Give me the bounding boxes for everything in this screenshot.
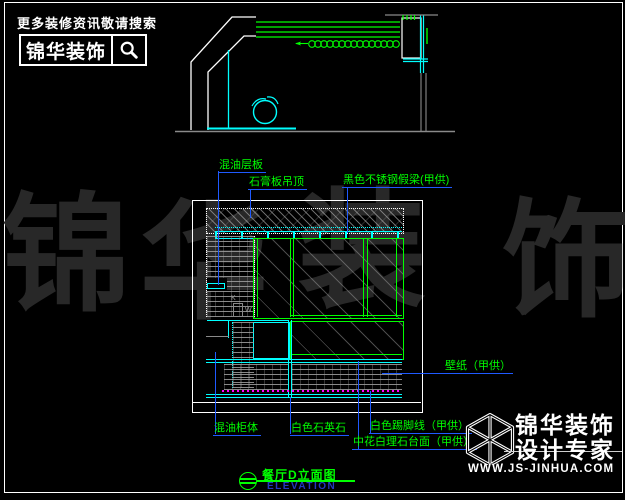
watermark-char: 饰 bbox=[502, 198, 625, 326]
watermark-char: 锦 bbox=[2, 192, 130, 320]
center-divider bbox=[291, 320, 292, 397]
mirror-panel-upper bbox=[253, 238, 404, 319]
cube-logo-icon bbox=[463, 411, 517, 465]
floor-line bbox=[192, 402, 421, 403]
mullion bbox=[290, 238, 291, 317]
leader-ceiling-shelf bbox=[218, 171, 219, 285]
label-white-skirting: 白色踢脚线（甲供） bbox=[369, 420, 472, 434]
rail bbox=[290, 315, 402, 316]
curtain-loop-pattern bbox=[296, 41, 399, 48]
brand-logo-text: 锦华装饰 bbox=[21, 37, 111, 64]
brick-column-upper bbox=[206, 236, 255, 317]
lower-cabinet-left bbox=[224, 364, 288, 390]
magnifier-icon bbox=[113, 40, 145, 60]
counter-line bbox=[206, 359, 402, 360]
top-slogan: 更多装修资讯敬请搜索 bbox=[17, 13, 157, 32]
counter-line bbox=[206, 362, 402, 363]
mullion bbox=[396, 238, 397, 317]
mullion bbox=[367, 238, 368, 317]
section-symbol-icon bbox=[239, 472, 257, 490]
base-line bbox=[206, 397, 402, 398]
bottom-brand-company: 锦华装饰 bbox=[515, 414, 615, 437]
center-divider bbox=[288, 320, 289, 397]
cad-figure-detail: K bbox=[231, 295, 236, 302]
cad-figure-detail-2: W bbox=[245, 307, 252, 314]
top-section-drawing-lines bbox=[170, 5, 460, 135]
label-marble-countertop: 中花白理石台面（甲供） bbox=[352, 436, 477, 450]
bottom-brand-website: WWW.JS-JINHUA.COM bbox=[468, 463, 614, 475]
niche-line bbox=[207, 320, 289, 321]
base-line bbox=[206, 394, 402, 395]
drawing-subtitle: ELEVATION bbox=[267, 481, 336, 492]
label-white-quartz: 白色石英石 bbox=[290, 422, 349, 436]
label-ceiling-shelf: 混油层板 bbox=[218, 159, 266, 173]
rail bbox=[290, 318, 402, 319]
label-gypsum-ceiling: 石膏板吊顶 bbox=[248, 176, 307, 190]
leader-beam bbox=[347, 187, 348, 233]
leader-gypsum bbox=[250, 189, 251, 218]
niche-box bbox=[253, 322, 290, 359]
skirting-dotted-line bbox=[222, 390, 402, 392]
mullion bbox=[293, 238, 294, 317]
cad-figure-k: K bbox=[231, 295, 236, 302]
leader-wallpaper bbox=[382, 373, 513, 374]
beam-dotted-line bbox=[215, 227, 402, 229]
cad-drawing-sheet: 锦 华 装 饰 更多装修资讯敬请搜索 锦华装饰 bbox=[0, 0, 625, 500]
mullion bbox=[257, 238, 258, 317]
label-steel-fake-beam: 黑色不锈钢假梁(甲供) bbox=[342, 174, 452, 188]
cad-figure-w: W bbox=[245, 307, 252, 314]
rail bbox=[290, 354, 402, 355]
lower-cabinet-right bbox=[292, 364, 402, 390]
mullion bbox=[363, 238, 364, 317]
label-wallpaper: 壁纸（甲供） bbox=[444, 360, 514, 373]
cyan-shelf bbox=[207, 283, 225, 289]
search-logo-box: 锦华装饰 bbox=[19, 34, 147, 66]
bottom-brand-tagline: 设计专家 bbox=[515, 439, 615, 462]
niche-gray-line bbox=[206, 336, 229, 337]
label-paint-cabinet: 混油柜体 bbox=[213, 422, 261, 436]
cad-figure-body bbox=[233, 303, 243, 317]
